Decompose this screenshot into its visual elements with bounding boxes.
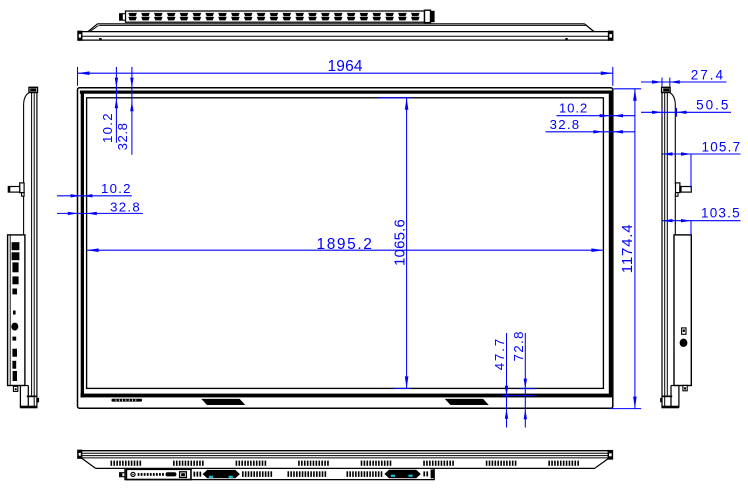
svg-text:1065.6: 1065.6 bbox=[392, 219, 409, 266]
svg-text:32.8: 32.8 bbox=[110, 200, 141, 215]
svg-text:27.4: 27.4 bbox=[691, 67, 725, 82]
svg-text:50.5: 50.5 bbox=[696, 98, 730, 113]
svg-text:32.8: 32.8 bbox=[115, 123, 130, 151]
svg-text:1964: 1964 bbox=[327, 58, 362, 75]
svg-text:47.7: 47.7 bbox=[492, 337, 507, 370]
svg-text:10.2: 10.2 bbox=[559, 101, 588, 116]
svg-text:1174.4: 1174.4 bbox=[619, 224, 636, 274]
svg-text:103.5: 103.5 bbox=[701, 206, 741, 221]
svg-text:10.2: 10.2 bbox=[101, 181, 132, 196]
svg-text:1895.2: 1895.2 bbox=[316, 236, 373, 253]
svg-text:105.7: 105.7 bbox=[702, 139, 742, 154]
svg-text:32.8: 32.8 bbox=[550, 117, 581, 132]
svg-text:72.8: 72.8 bbox=[511, 330, 526, 361]
svg-text:10.2: 10.2 bbox=[100, 112, 115, 143]
